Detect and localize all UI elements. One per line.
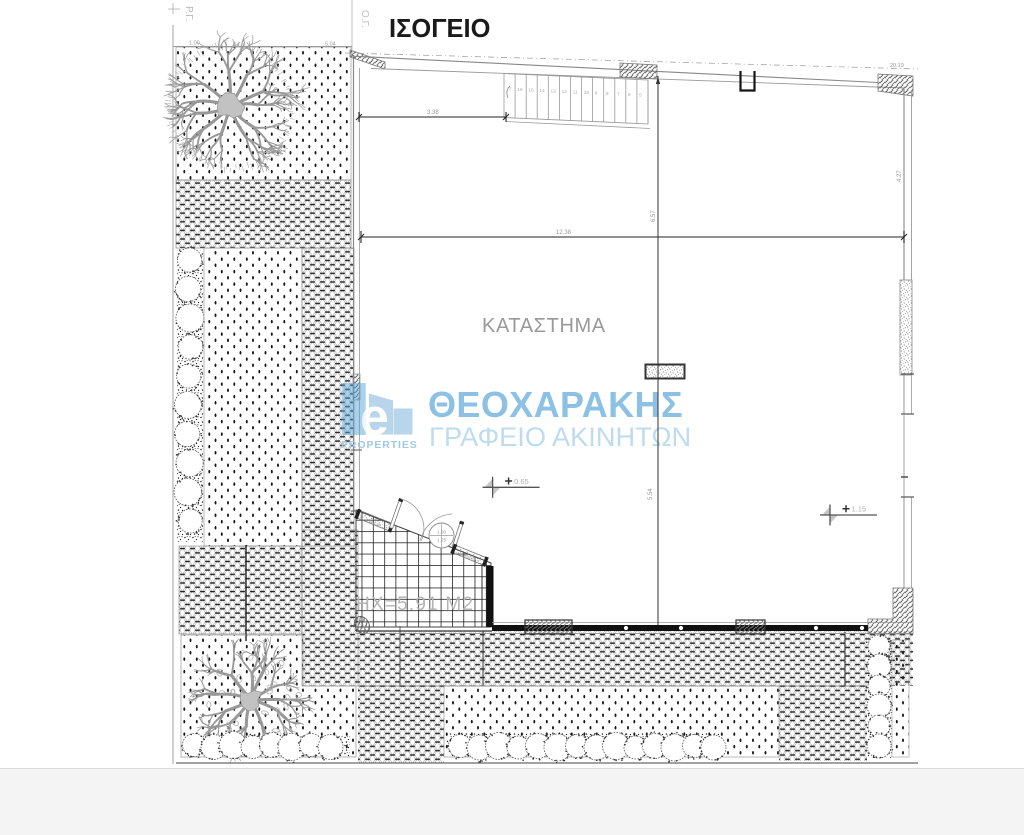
svg-text:4.27: 4.27 [897,170,903,182]
svg-text:ΗΧ=5.91 Μ2: ΗΧ=5.91 Μ2 [356,594,474,615]
svg-text:ΚΑΤΑΣΤΗΜΑ: ΚΑΤΑΣΤΗΜΑ [482,315,606,337]
svg-text:1.15: 1.15 [852,505,867,514]
svg-text:12: 12 [562,89,568,95]
svg-text:3.38: 3.38 [427,110,439,116]
svg-text:14: 14 [539,88,545,94]
svg-text:13: 13 [551,89,557,95]
svg-text:1.00: 1.00 [189,41,200,47]
svg-text:Ο.Γ.: Ο.Γ. [359,10,370,28]
svg-text:16: 16 [517,87,523,93]
svg-text:9: 9 [595,91,598,97]
svg-text:5.04: 5.04 [325,42,336,48]
svg-text:ΓΡΑΦΕΙΟ ΑΚΙΝΗΤΩΝ: ΓΡΑΦΕΙΟ ΑΚΙΝΗΤΩΝ [429,421,691,452]
svg-text:6.57: 6.57 [651,210,657,222]
svg-text:5: 5 [639,93,642,99]
svg-text:1.25: 1.25 [437,538,447,544]
svg-text:15: 15 [528,88,534,94]
svg-text:10: 10 [584,90,590,96]
svg-text:12.38: 12.38 [556,230,572,236]
svg-text:e: e [360,389,389,447]
svg-text:8: 8 [606,91,609,97]
svg-text:5.54: 5.54 [648,488,654,500]
svg-text:PROPERTIES: PROPERTIES [341,439,418,451]
svg-text:7: 7 [617,92,620,98]
svg-text:6: 6 [628,92,631,98]
svg-text:Ρ.Γ.: Ρ.Γ. [183,6,194,21]
svg-text:20.19: 20.19 [890,63,904,69]
svg-text:ΘΕΟΧΑΡΑΚΗΣ: ΘΕΟΧΑΡΑΚΗΣ [428,384,683,425]
svg-text:17: 17 [506,87,512,93]
svg-text:ΙΣΟΓΕΙΟ: ΙΣΟΓΕΙΟ [389,15,490,43]
svg-text:11: 11 [573,90,578,96]
svg-text:1.90: 1.90 [437,530,447,536]
svg-text:0.65: 0.65 [514,477,529,486]
